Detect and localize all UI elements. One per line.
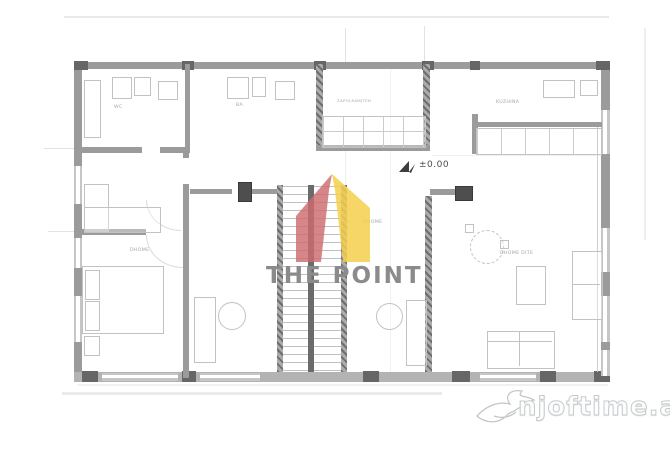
sink-fixture [134, 77, 151, 96]
kitchen-appliance [580, 80, 598, 96]
wall-interior [190, 189, 232, 194]
pillow [85, 270, 100, 300]
extension-line [424, 26, 425, 62]
wardrobe [406, 300, 427, 366]
kitchen-appliance [543, 80, 575, 98]
kitchen-counter [476, 128, 602, 155]
wall-interior [183, 184, 189, 378]
toilet-fixture [275, 81, 295, 100]
window [74, 296, 82, 342]
room-label-bedroom-middle: DHOME [363, 219, 382, 224]
room-label-wc: WC [114, 104, 123, 109]
wall-pier [452, 371, 470, 382]
floor-plan-scan: WC BA ZAPOLEAMJTEN KUZHINA DHOME DHOME D… [0, 0, 670, 450]
stairs [314, 186, 341, 371]
cabinet [227, 77, 249, 99]
window [102, 373, 178, 381]
nightstand [84, 336, 100, 356]
table-round [376, 303, 403, 330]
dining-chair [500, 240, 509, 249]
wall-top [74, 62, 608, 69]
level-value: ±0.00 [419, 160, 449, 170]
room-label-kitchen: KUZHINA [496, 99, 519, 104]
sofa-back-line [488, 341, 552, 342]
window [601, 350, 610, 376]
coffee-table [516, 266, 546, 305]
wall-inner-line [597, 125, 598, 372]
sink-fixture [252, 77, 266, 97]
door-leaf [455, 186, 473, 201]
window [480, 373, 536, 381]
window [74, 238, 82, 268]
wall-pier [540, 371, 556, 382]
shower-fixture [84, 80, 101, 138]
counter [84, 207, 161, 233]
door-leaf [238, 182, 252, 202]
stairs [283, 186, 308, 371]
wall-interior [252, 189, 278, 194]
njoftime-text: njoftime.al [518, 392, 670, 422]
scan-shadow-line [78, 384, 608, 386]
room-label-bath: BA [236, 102, 243, 107]
room-label-bedroom-left: DHOME [130, 247, 149, 252]
wall-pier [470, 61, 480, 70]
closet-shelving [322, 116, 426, 148]
scan-shadow-line [62, 392, 442, 395]
wall-interior [472, 122, 602, 127]
wall-interior [430, 189, 457, 195]
armchair-sofa [572, 251, 603, 320]
extension-line [48, 231, 74, 232]
extension-line [44, 148, 74, 149]
wall-pier [363, 371, 379, 382]
wardrobe [194, 297, 216, 363]
swallow-bird-icon [474, 386, 540, 432]
dining-chair [465, 224, 474, 233]
sofa [487, 331, 555, 369]
extension-line [345, 28, 346, 62]
toilet-fixture [158, 81, 178, 100]
scan-artifact-line [64, 16, 609, 18]
cabinet [112, 77, 132, 99]
wall-pier [82, 371, 98, 382]
table-round [218, 302, 246, 330]
sofa-back-line [519, 332, 520, 366]
stair-wall [341, 185, 347, 372]
room-label-living: DHOME DITE [500, 250, 533, 255]
wall-pier [596, 61, 610, 70]
construction-line [432, 155, 600, 156]
door-swing-arc [146, 235, 183, 268]
wall-interior [185, 64, 190, 150]
sofa-back-line [573, 284, 600, 285]
scan-artifact-line [644, 28, 646, 240]
level-marker-icon [398, 159, 416, 174]
window [601, 110, 610, 154]
window [74, 166, 82, 204]
wall-pier [74, 61, 88, 70]
room-label-closet: ZAPOLEAMJTEN [337, 99, 371, 104]
pillow [85, 301, 100, 331]
wall-interior [78, 147, 142, 153]
window [200, 373, 260, 381]
wall-interior [183, 150, 189, 158]
dining-table [470, 230, 504, 264]
